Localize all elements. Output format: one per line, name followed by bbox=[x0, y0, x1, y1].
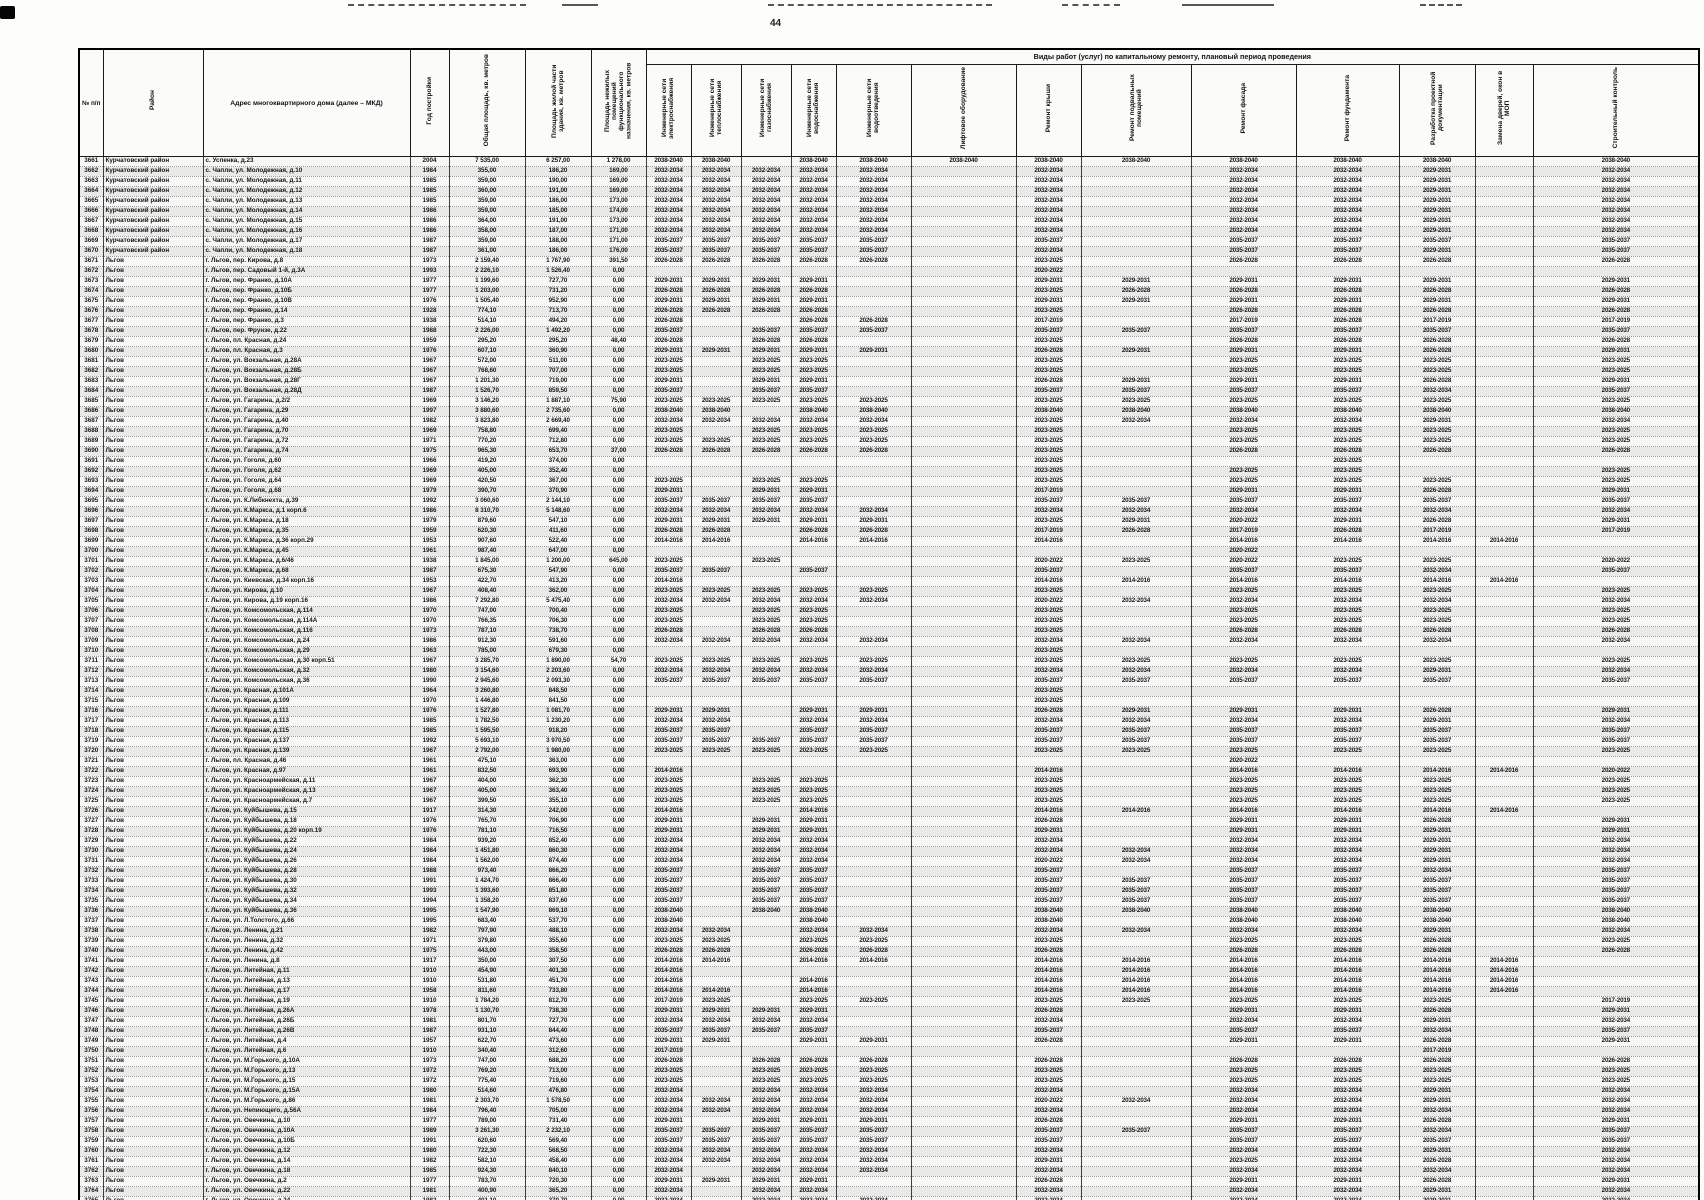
data-cell: 3749 bbox=[79, 1037, 103, 1047]
period-cell: 2035-2037 bbox=[1296, 677, 1399, 687]
period-cell bbox=[911, 877, 1016, 887]
period-cell bbox=[1533, 957, 1699, 967]
period-cell: 2023-2025 bbox=[1399, 1077, 1475, 1087]
data-cell: 1959 bbox=[410, 337, 449, 347]
period-cell: 2035-2037 bbox=[646, 327, 691, 337]
period-cell bbox=[911, 167, 1016, 177]
period-cell bbox=[1191, 647, 1296, 657]
period-cell: 2023-2025 bbox=[1016, 427, 1081, 437]
period-cell: 2029-2031 bbox=[1191, 487, 1296, 497]
data-cell: 359,00 bbox=[449, 197, 525, 207]
data-cell: 1980 bbox=[410, 1147, 449, 1157]
period-cell: 2029-2031 bbox=[791, 487, 836, 497]
data-cell: 787,10 bbox=[449, 627, 525, 637]
data-cell: 1 451,80 bbox=[449, 847, 525, 857]
period-cell: 2026-2028 bbox=[1399, 447, 1475, 457]
period-cell: 2023-2025 bbox=[1399, 797, 1475, 807]
period-cell bbox=[911, 1147, 1016, 1157]
period-cell: 2035-2037 bbox=[791, 867, 836, 877]
period-cell: 2029-2031 bbox=[741, 1177, 791, 1187]
data-cell: 2 226,00 bbox=[449, 327, 525, 337]
data-cell: 1953 bbox=[410, 577, 449, 587]
period-cell bbox=[836, 277, 911, 287]
period-cell: 2029-2031 bbox=[1533, 827, 1699, 837]
table-row: 3704Льговг. Льгов, ул. Кирова, д.1019674… bbox=[79, 587, 1699, 597]
period-cell: 2014-2016 bbox=[1016, 807, 1081, 817]
data-cell: 476,80 bbox=[525, 1087, 591, 1097]
period-cell: 2029-2031 bbox=[741, 487, 791, 497]
period-cell: 2032-2034 bbox=[1016, 197, 1081, 207]
data-cell: 918,20 bbox=[525, 727, 591, 737]
period-cell bbox=[1081, 457, 1191, 467]
period-cell bbox=[1475, 287, 1533, 297]
period-cell: 2029-2031 bbox=[1191, 707, 1296, 717]
period-cell: 2023-2025 bbox=[646, 397, 691, 407]
period-cell bbox=[836, 1177, 911, 1187]
data-cell: 3664 bbox=[79, 187, 103, 197]
period-cell bbox=[836, 487, 911, 497]
period-cell: 2023-2025 bbox=[1016, 477, 1081, 487]
period-cell: 2032-2034 bbox=[1016, 1017, 1081, 1027]
data-cell: 0,00 bbox=[591, 367, 646, 377]
period-cell: 2026-2028 bbox=[741, 447, 791, 457]
table-row: 3745Льговг. Льгов, ул. Литейная, д.19191… bbox=[79, 997, 1699, 1007]
period-cell: 2023-2025 bbox=[836, 437, 911, 447]
period-cell: 2038-2040 bbox=[1081, 407, 1191, 417]
period-cell bbox=[1081, 247, 1191, 257]
data-cell: 1957 bbox=[410, 1037, 449, 1047]
data-cell: 1984 bbox=[410, 857, 449, 867]
period-cell bbox=[836, 887, 911, 897]
period-cell: 2032-2034 bbox=[836, 1097, 911, 1107]
period-cell: 2020-2022 bbox=[1191, 557, 1296, 567]
table-row: 3666Курчатовский районс. Чапли, ул. Моло… bbox=[79, 207, 1699, 217]
period-cell: 2035-2037 bbox=[1016, 737, 1081, 747]
data-cell: 3725 bbox=[79, 797, 103, 807]
data-cell: 3732 bbox=[79, 867, 103, 877]
period-cell bbox=[1081, 1027, 1191, 1037]
data-cell: 1 081,70 bbox=[525, 707, 591, 717]
period-cell bbox=[1475, 387, 1533, 397]
period-cell: 2032-2034 bbox=[741, 847, 791, 857]
data-cell: 169,00 bbox=[591, 177, 646, 187]
period-cell: 2014-2016 bbox=[1475, 977, 1533, 987]
period-cell: 2014-2016 bbox=[1475, 577, 1533, 587]
table-row: 3706Льговг. Льгов, ул. Комсомольская, д.… bbox=[79, 607, 1699, 617]
data-cell: 1 278,00 bbox=[591, 157, 646, 167]
period-cell bbox=[1296, 697, 1399, 707]
period-cell bbox=[836, 907, 911, 917]
period-cell: 2023-2025 bbox=[1191, 997, 1296, 1007]
data-cell: Льгов bbox=[103, 487, 203, 497]
period-cell: 2035-2037 bbox=[1399, 327, 1475, 337]
data-cell: 1 393,60 bbox=[449, 887, 525, 897]
data-cell: Льгов bbox=[103, 547, 203, 557]
period-cell bbox=[1081, 757, 1191, 767]
data-cell: г. Льгов, ул. Непиющего, д.56А bbox=[203, 1107, 410, 1117]
period-cell: 2029-2031 bbox=[646, 377, 691, 387]
data-cell: 1987 bbox=[410, 387, 449, 397]
period-cell: 2023-2025 bbox=[1191, 797, 1296, 807]
period-cell bbox=[741, 977, 791, 987]
data-cell: 3746 bbox=[79, 1007, 103, 1017]
period-cell: 2026-2028 bbox=[646, 337, 691, 347]
period-cell: 2029-2031 bbox=[1191, 827, 1296, 837]
period-cell: 2032-2034 bbox=[741, 1197, 791, 1200]
period-cell bbox=[1475, 1017, 1533, 1027]
scan-artifact-line bbox=[1062, 4, 1120, 6]
period-cell bbox=[691, 1047, 741, 1057]
period-cell: 2032-2034 bbox=[1191, 417, 1296, 427]
period-cell bbox=[1081, 827, 1191, 837]
period-cell: 2035-2037 bbox=[1533, 327, 1699, 337]
period-cell: 2029-2031 bbox=[1191, 377, 1296, 387]
period-cell: 2035-2037 bbox=[791, 1137, 836, 1147]
period-cell: 2032-2034 bbox=[836, 1147, 911, 1157]
data-cell: г. Льгов, ул. Красная, д.115 bbox=[203, 727, 410, 737]
period-cell: 2023-2025 bbox=[1296, 787, 1399, 797]
data-cell: г. Льгов, ул. Красноармейская, д.13 bbox=[203, 787, 410, 797]
period-cell: 2035-2037 bbox=[791, 1027, 836, 1037]
period-cell bbox=[836, 817, 911, 827]
data-cell: 699,40 bbox=[525, 427, 591, 437]
period-cell: 2026-2028 bbox=[1296, 447, 1399, 457]
period-cell bbox=[1475, 857, 1533, 867]
data-cell: 374,00 bbox=[525, 457, 591, 467]
data-cell: 720,30 bbox=[525, 1177, 591, 1187]
data-cell: 295,20 bbox=[449, 337, 525, 347]
period-cell bbox=[1191, 267, 1296, 277]
period-cell: 2035-2037 bbox=[1191, 237, 1296, 247]
period-cell bbox=[1475, 777, 1533, 787]
data-cell: с. Чапли, ул. Молодежная, д.17 bbox=[203, 237, 410, 247]
data-cell: 169,00 bbox=[591, 187, 646, 197]
period-cell bbox=[1533, 697, 1699, 707]
data-cell: Льгов bbox=[103, 347, 203, 357]
data-cell: Льгов bbox=[103, 797, 203, 807]
data-cell: 1975 bbox=[410, 447, 449, 457]
period-cell: 2023-2025 bbox=[791, 607, 836, 617]
period-cell: 2032-2034 bbox=[1533, 1087, 1699, 1097]
period-cell: 2032-2034 bbox=[741, 837, 791, 847]
period-cell: 2023-2025 bbox=[646, 477, 691, 487]
period-cell: 2014-2016 bbox=[1016, 767, 1081, 777]
data-cell: 1 782,50 bbox=[449, 717, 525, 727]
column-header-district: Район bbox=[103, 49, 203, 157]
data-cell: 0,00 bbox=[591, 817, 646, 827]
period-cell: 2032-2034 bbox=[741, 207, 791, 217]
period-cell bbox=[691, 337, 741, 347]
period-cell: 2023-2025 bbox=[741, 787, 791, 797]
data-cell: 0,00 bbox=[591, 537, 646, 547]
data-cell: 0,00 bbox=[591, 907, 646, 917]
period-cell: 2023-2025 bbox=[741, 617, 791, 627]
period-cell bbox=[1475, 1127, 1533, 1137]
period-cell: 2032-2034 bbox=[1191, 837, 1296, 847]
period-cell: 2035-2037 bbox=[1296, 387, 1399, 397]
data-cell: с. Чапли, ул. Молодежная, д.15 bbox=[203, 217, 410, 227]
period-cell: 2014-2016 bbox=[1191, 977, 1296, 987]
data-cell: 3686 bbox=[79, 407, 103, 417]
period-cell bbox=[836, 287, 911, 297]
period-cell: 2038-2040 bbox=[646, 907, 691, 917]
period-cell: 2035-2037 bbox=[1399, 727, 1475, 737]
data-cell: 408,40 bbox=[449, 587, 525, 597]
period-cell: 2035-2037 bbox=[646, 877, 691, 887]
period-cell bbox=[1296, 757, 1399, 767]
period-cell bbox=[691, 467, 741, 477]
period-cell bbox=[911, 177, 1016, 187]
period-cell: 2035-2037 bbox=[791, 887, 836, 897]
period-cell: 2032-2034 bbox=[646, 597, 691, 607]
period-cell: 2032-2034 bbox=[1533, 207, 1699, 217]
period-cell: 2032-2034 bbox=[1296, 177, 1399, 187]
table-row: 3753Льговг. Льгов, ул. М.Горького, д.151… bbox=[79, 1077, 1699, 1087]
period-cell bbox=[691, 697, 741, 707]
period-cell bbox=[646, 757, 691, 767]
data-cell: 907,60 bbox=[449, 537, 525, 547]
period-cell bbox=[836, 977, 911, 987]
period-cell bbox=[911, 447, 1016, 457]
period-cell: 2014-2016 bbox=[1399, 577, 1475, 587]
period-cell: 2032-2034 bbox=[1191, 207, 1296, 217]
data-cell: г. Льгов, ул. Красная, д.113 bbox=[203, 717, 410, 727]
data-cell: Льгов bbox=[103, 657, 203, 667]
period-cell: 2023-2025 bbox=[791, 787, 836, 797]
table-row: 3751Льговг. Льгов, ул. М.Горького, д.10А… bbox=[79, 1057, 1699, 1067]
period-cell: 2029-2031 bbox=[741, 827, 791, 837]
period-cell bbox=[1475, 757, 1533, 767]
data-cell: 3663 bbox=[79, 177, 103, 187]
data-cell: Льгов bbox=[103, 787, 203, 797]
period-cell bbox=[911, 1017, 1016, 1027]
data-cell: 653,70 bbox=[525, 447, 591, 457]
table-row: 3691Льговг. Льгов, ул. Гоголя, д.6019664… bbox=[79, 457, 1699, 467]
data-cell: г. Льгов, пл. Красная, д.46 bbox=[203, 757, 410, 767]
table-row: 3756Льговг. Льгов, ул. Непиющего, д.56А1… bbox=[79, 1107, 1699, 1117]
period-cell: 2032-2034 bbox=[836, 167, 911, 177]
period-cell: 2032-2034 bbox=[1399, 1167, 1475, 1177]
period-cell: 2029-2031 bbox=[741, 297, 791, 307]
period-cell: 2035-2037 bbox=[1016, 327, 1081, 337]
period-cell: 2023-2025 bbox=[791, 937, 836, 947]
data-cell: 514,10 bbox=[449, 317, 525, 327]
period-cell: 2032-2034 bbox=[646, 187, 691, 197]
period-cell: 2026-2028 bbox=[1081, 527, 1191, 537]
data-cell: 973,40 bbox=[449, 867, 525, 877]
table-row: 3733Льговг. Льгов, ул. Куйбышева, д.3019… bbox=[79, 877, 1699, 887]
data-cell: 0,00 bbox=[591, 857, 646, 867]
period-cell bbox=[836, 1027, 911, 1037]
period-cell: 2023-2025 bbox=[1399, 587, 1475, 597]
period-cell: 2029-2031 bbox=[646, 827, 691, 837]
period-cell bbox=[911, 497, 1016, 507]
data-cell: 1 526,40 bbox=[525, 267, 591, 277]
period-cell: 2032-2034 bbox=[741, 507, 791, 517]
data-cell: г. Льгов, пер. Франко, д.3 bbox=[203, 317, 410, 327]
period-cell: 2029-2031 bbox=[1533, 1007, 1699, 1017]
data-cell: Льгов bbox=[103, 947, 203, 957]
period-cell: 2023-2025 bbox=[1533, 397, 1699, 407]
period-cell bbox=[691, 907, 741, 917]
data-cell: 1 562,00 bbox=[449, 857, 525, 867]
period-cell: 2029-2031 bbox=[1399, 837, 1475, 847]
data-cell: 719,00 bbox=[525, 377, 591, 387]
period-cell bbox=[836, 917, 911, 927]
period-cell: 2029-2031 bbox=[1191, 1117, 1296, 1127]
period-cell: 2032-2034 bbox=[1533, 637, 1699, 647]
period-cell: 2035-2037 bbox=[1399, 897, 1475, 907]
data-cell: 0,00 bbox=[591, 567, 646, 577]
table-row: 3759Льговг. Льгов, ул. Овечкина, д.10Б19… bbox=[79, 1137, 1699, 1147]
period-cell: 2032-2034 bbox=[646, 857, 691, 867]
data-cell: г. Льгов, ул. Красноармейская, д.11 bbox=[203, 777, 410, 787]
table-row: 3700Льговг. Льгов, ул. К.Маркса, д.45196… bbox=[79, 547, 1699, 557]
period-cell: 2014-2016 bbox=[646, 767, 691, 777]
period-cell: 2032-2034 bbox=[791, 847, 836, 857]
period-cell: 2026-2028 bbox=[1296, 947, 1399, 957]
period-cell: 2035-2037 bbox=[646, 247, 691, 257]
data-cell: г. Льгов, ул. Кирова, д.10 bbox=[203, 587, 410, 597]
period-cell bbox=[1475, 617, 1533, 627]
period-cell bbox=[1191, 1047, 1296, 1057]
period-cell: 2023-2025 bbox=[1296, 477, 1399, 487]
period-cell bbox=[911, 607, 1016, 617]
period-cell: 2023-2025 bbox=[791, 747, 836, 757]
period-cell bbox=[791, 547, 836, 557]
period-cell bbox=[1081, 1167, 1191, 1177]
data-cell: 1976 bbox=[410, 707, 449, 717]
period-cell: 2032-2034 bbox=[646, 1097, 691, 1107]
data-cell: 186,20 bbox=[525, 167, 591, 177]
period-cell bbox=[911, 897, 1016, 907]
period-cell bbox=[791, 647, 836, 657]
data-cell: 358,00 bbox=[449, 227, 525, 237]
period-cell: 2029-2031 bbox=[741, 517, 791, 527]
table-row: 3764Льговг. Льгов, ул. Овечкина, д.22198… bbox=[79, 1187, 1699, 1197]
period-cell: 2032-2034 bbox=[1191, 1187, 1296, 1197]
period-cell bbox=[1081, 307, 1191, 317]
data-cell: 3722 bbox=[79, 767, 103, 777]
period-cell bbox=[911, 257, 1016, 267]
data-cell: 0,00 bbox=[591, 1117, 646, 1127]
period-cell: 2032-2034 bbox=[1016, 637, 1081, 647]
data-cell: 572,00 bbox=[449, 357, 525, 367]
data-cell: 0,00 bbox=[591, 1197, 646, 1200]
data-cell: 781,10 bbox=[449, 827, 525, 837]
period-cell: 2032-2034 bbox=[646, 1197, 691, 1200]
data-cell: 1980 bbox=[410, 1087, 449, 1097]
data-cell: Льгов bbox=[103, 627, 203, 637]
data-cell: 1 887,10 bbox=[525, 397, 591, 407]
data-cell: 399,50 bbox=[449, 797, 525, 807]
table-row: 3703Льговг. Льгов, ул. Киевская, д.34 ко… bbox=[79, 577, 1699, 587]
data-cell: 0,00 bbox=[591, 847, 646, 857]
period-cell: 2029-2031 bbox=[1399, 417, 1475, 427]
period-cell: 2023-2025 bbox=[741, 607, 791, 617]
period-cell bbox=[836, 647, 911, 657]
period-cell: 2032-2034 bbox=[691, 167, 741, 177]
data-cell: Льгов bbox=[103, 677, 203, 687]
data-cell: 3704 bbox=[79, 587, 103, 597]
data-cell: 1972 bbox=[410, 1077, 449, 1087]
period-cell: 2035-2037 bbox=[836, 327, 911, 337]
period-cell: 2035-2037 bbox=[836, 237, 911, 247]
data-cell: 797,90 bbox=[449, 927, 525, 937]
period-cell: 2029-2031 bbox=[1533, 1037, 1699, 1047]
data-cell: 54,70 bbox=[591, 657, 646, 667]
period-cell: 2029-2031 bbox=[791, 297, 836, 307]
period-cell: 2026-2028 bbox=[1399, 1157, 1475, 1167]
period-cell: 2035-2037 bbox=[741, 897, 791, 907]
data-cell: 422,70 bbox=[449, 577, 525, 587]
period-cell: 2035-2037 bbox=[791, 877, 836, 887]
data-cell: 3740 bbox=[79, 947, 103, 957]
period-cell bbox=[791, 687, 836, 697]
data-cell: 1969 bbox=[410, 427, 449, 437]
period-cell: 2026-2028 bbox=[1016, 1177, 1081, 1187]
data-cell: 3737 bbox=[79, 917, 103, 927]
period-cell bbox=[911, 417, 1016, 427]
period-cell bbox=[1475, 947, 1533, 957]
period-cell: 2017-2019 bbox=[1016, 527, 1081, 537]
data-cell: г. Льгов, ул. Куйбышева, д.34 bbox=[203, 897, 410, 907]
period-cell: 2026-2028 bbox=[1016, 347, 1081, 357]
period-cell: 2023-2025 bbox=[836, 997, 911, 1007]
table-row: 3709Льговг. Льгов, ул. Комсомольская, д.… bbox=[79, 637, 1699, 647]
column-header-year: Год постройки bbox=[410, 49, 449, 157]
data-cell: Льгов bbox=[103, 1017, 203, 1027]
period-cell: 2023-2025 bbox=[791, 437, 836, 447]
data-cell: 3678 bbox=[79, 327, 103, 337]
data-cell: г. Льгов, ул. К.Маркса, д.1 корп.6 bbox=[203, 507, 410, 517]
period-cell: 2035-2037 bbox=[1399, 237, 1475, 247]
data-cell: с. Успенка, д.23 bbox=[203, 157, 410, 167]
period-cell bbox=[691, 887, 741, 897]
period-cell: 2032-2034 bbox=[1191, 177, 1296, 187]
data-cell: Льгов bbox=[103, 1077, 203, 1087]
period-cell: 2014-2016 bbox=[1296, 537, 1399, 547]
period-cell bbox=[1475, 647, 1533, 657]
data-cell: 3 823,80 bbox=[449, 417, 525, 427]
period-cell bbox=[836, 827, 911, 837]
data-cell: 3674 bbox=[79, 287, 103, 297]
data-cell: 1953 bbox=[410, 537, 449, 547]
period-cell bbox=[911, 427, 1016, 437]
period-cell bbox=[1475, 1107, 1533, 1117]
period-cell: 2026-2028 bbox=[741, 287, 791, 297]
period-cell: 2032-2034 bbox=[791, 227, 836, 237]
period-cell: 2029-2031 bbox=[1191, 277, 1296, 287]
period-cell: 2023-2025 bbox=[646, 777, 691, 787]
period-cell bbox=[911, 817, 1016, 827]
period-cell: 2035-2037 bbox=[1191, 737, 1296, 747]
table-row: 3736Льговг. Льгов, ул. Куйбышева, д.3619… bbox=[79, 907, 1699, 917]
period-cell: 2023-2025 bbox=[741, 747, 791, 757]
period-cell bbox=[1475, 517, 1533, 527]
period-cell: 2014-2016 bbox=[791, 807, 836, 817]
data-cell: Льгов bbox=[103, 537, 203, 547]
period-cell: 2032-2034 bbox=[1016, 1107, 1081, 1117]
data-cell: 1982 bbox=[410, 1197, 449, 1200]
data-cell: г. Льгов, ул. Комсомольская, д.114 bbox=[203, 607, 410, 617]
data-cell: 722,30 bbox=[449, 1147, 525, 1157]
period-cell: 2026-2028 bbox=[791, 337, 836, 347]
table-row: 3749Льговг. Льгов, ул. Литейная, д.41957… bbox=[79, 1037, 1699, 1047]
period-cell: 2032-2034 bbox=[1191, 847, 1296, 857]
period-cell bbox=[911, 657, 1016, 667]
period-cell: 2026-2028 bbox=[1191, 1057, 1296, 1067]
